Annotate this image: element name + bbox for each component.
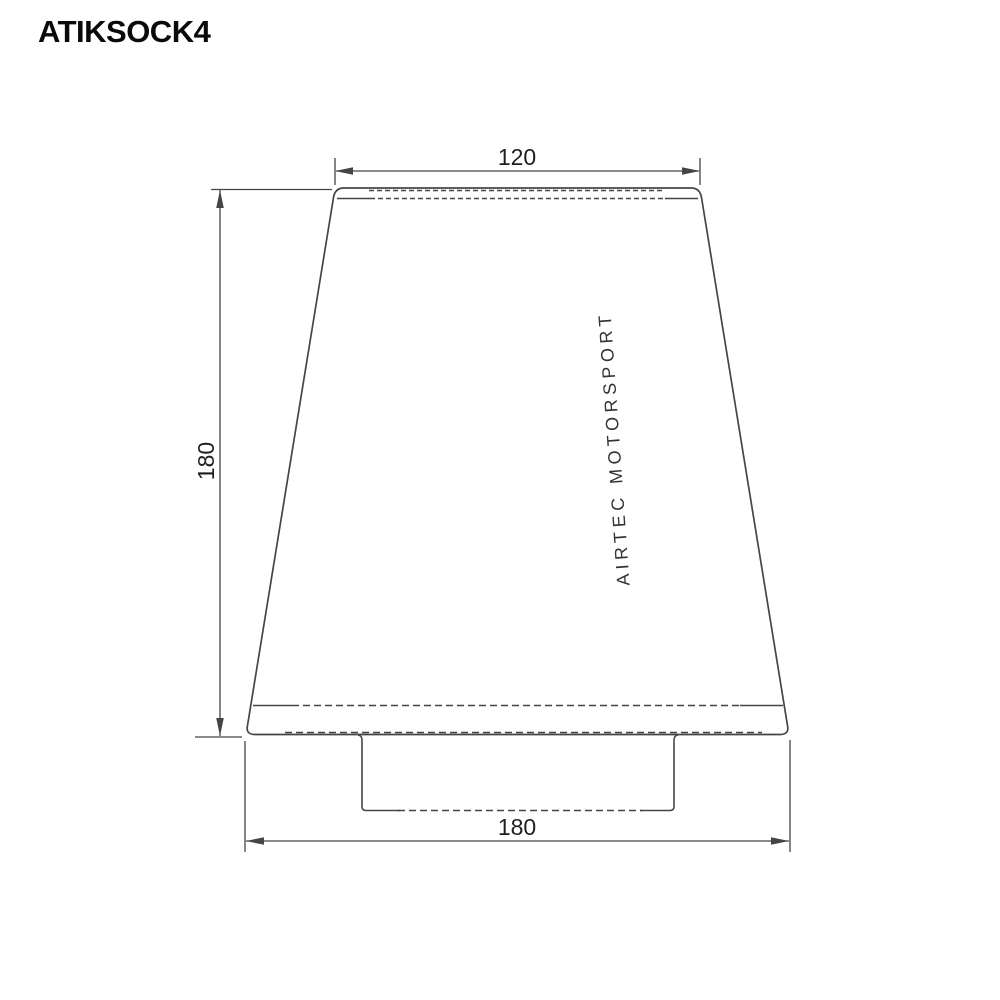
dim-label-height: 180 xyxy=(193,442,219,480)
dim-label-base-width: 180 xyxy=(498,814,536,840)
arrowhead-right xyxy=(682,167,700,175)
arrowhead-right xyxy=(771,837,789,845)
filter-body-outline xyxy=(247,188,788,735)
dimension-base-width: 180 xyxy=(245,740,790,852)
arrowhead-down xyxy=(216,718,224,736)
dim-label-top-width: 120 xyxy=(498,144,536,170)
arrowhead-left xyxy=(246,837,264,845)
arrowhead-left xyxy=(335,167,353,175)
inlet-neck xyxy=(358,735,678,811)
dimension-top-width: 120 xyxy=(335,144,700,185)
product-dimension-image: ATIKSOCK4 120 xyxy=(0,0,1000,1000)
arrowhead-up xyxy=(216,190,224,208)
technical-drawing: 120 180 180 AIRTEC MOTORSPORT xyxy=(0,0,1000,1000)
